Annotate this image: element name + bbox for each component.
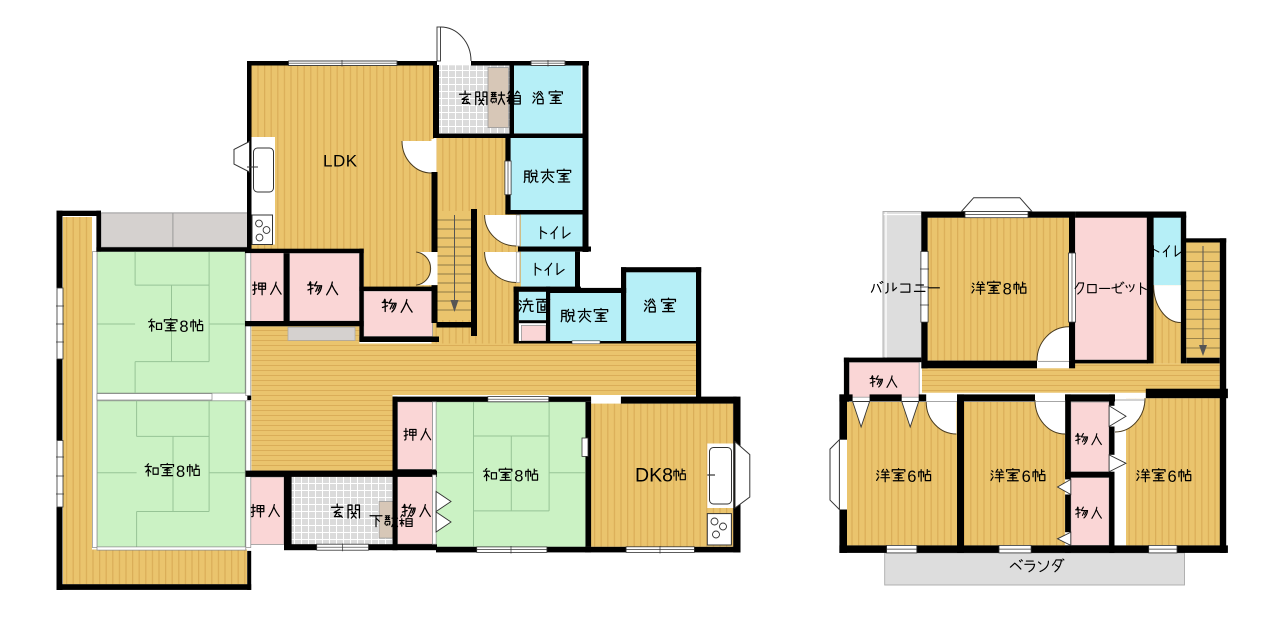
svg-text:DK8: DK8 bbox=[635, 465, 673, 487]
svg-text:6: 6 bbox=[1022, 468, 1031, 486]
svg-text:8: 8 bbox=[1003, 281, 1012, 299]
svg-text:LDK: LDK bbox=[323, 152, 358, 171]
svg-text:8: 8 bbox=[179, 318, 188, 336]
svg-text:8: 8 bbox=[176, 463, 185, 481]
svg-text:6: 6 bbox=[1168, 468, 1177, 486]
svg-text:8: 8 bbox=[514, 468, 523, 486]
svg-text:6: 6 bbox=[907, 468, 916, 486]
